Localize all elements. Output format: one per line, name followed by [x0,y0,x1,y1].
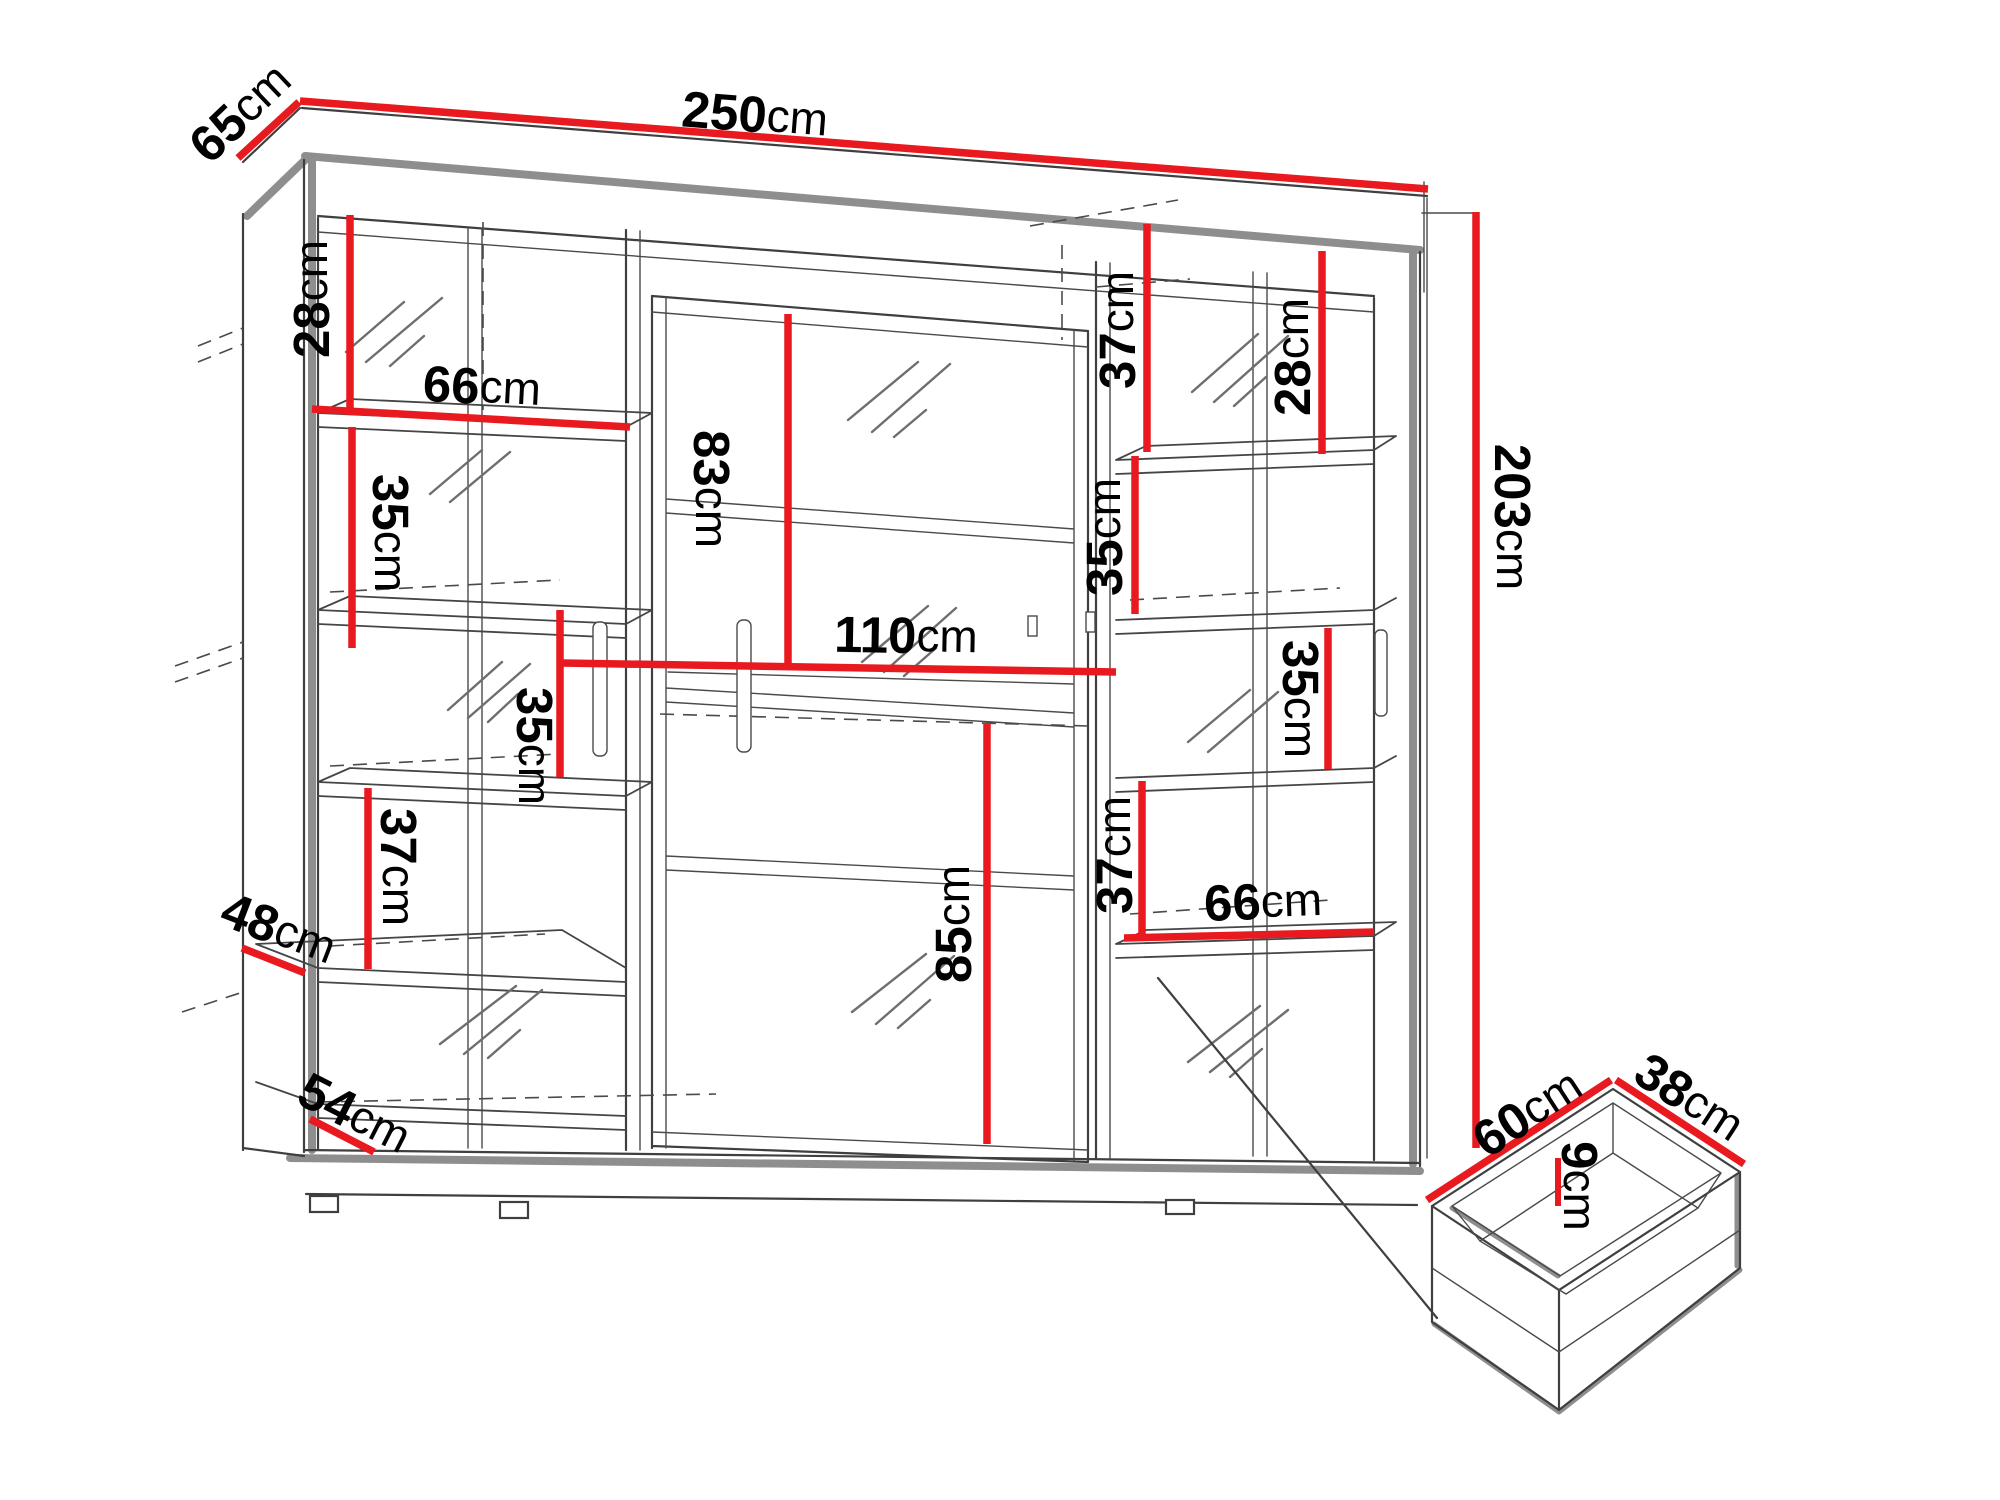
dim-label-left-top-section: 28cm [283,240,340,358]
door-handle-right [1375,630,1387,716]
door-handle-left [593,622,607,756]
door-handle-middle [737,620,751,752]
dim-label-overall-height: 203cm [1485,444,1542,590]
door-roller-left [1028,616,1037,636]
dim-label-left-upper-section: 35cm [363,474,420,592]
dim-label-drawer-height: 9cm [1552,1141,1609,1231]
dim-label-left-lower-section: 37cm [371,808,428,926]
shelf-lines [256,399,1396,1130]
dim-label-center-right-top-section: 37cm [1089,271,1146,389]
dim-label-overall-width: 250cm [680,80,830,148]
dim-line-overall-width [300,101,1428,189]
dim-label-left-shelf-width: 66cm [422,354,543,417]
dim-label-left-middle-section: 35cm [507,687,564,805]
foot-right [1166,1200,1194,1214]
dim-label-center-bottom-section: 85cm [925,865,982,983]
dim-label-right-mid-section: 35cm [1273,640,1330,758]
diagram-canvas: 250cm 65cm 203cm 28cm 66cm 35cm 35cm 37c… [0,0,2000,1500]
dim-label-right-top-section: 28cm [1264,298,1321,416]
dim-label-right-lower-section: 37cm [1086,796,1143,914]
dim-label-center-section-width: 110cm [834,605,979,664]
wardrobe-dimension-diagram: 250cm 65cm 203cm 28cm 66cm 35cm 35cm 37c… [0,0,2000,1500]
dim-line-center-section-width [562,663,1116,672]
foot-middle [500,1202,528,1218]
dimension-labels: 250cm 65cm 203cm 28cm 66cm 35cm 35cm 37c… [178,51,1755,1231]
foot-left [310,1196,338,1212]
door-roller-right [1086,612,1095,632]
drawer-callout-line [1158,978,1437,1318]
dim-label-center-top-section: 83cm [684,430,741,548]
dim-label-right-shelf-width: 66cm [1203,870,1323,931]
dim-label-drawer-width: 38cm [1625,1041,1755,1153]
dim-label-center-right-mid-section: 35cm [1076,478,1133,596]
